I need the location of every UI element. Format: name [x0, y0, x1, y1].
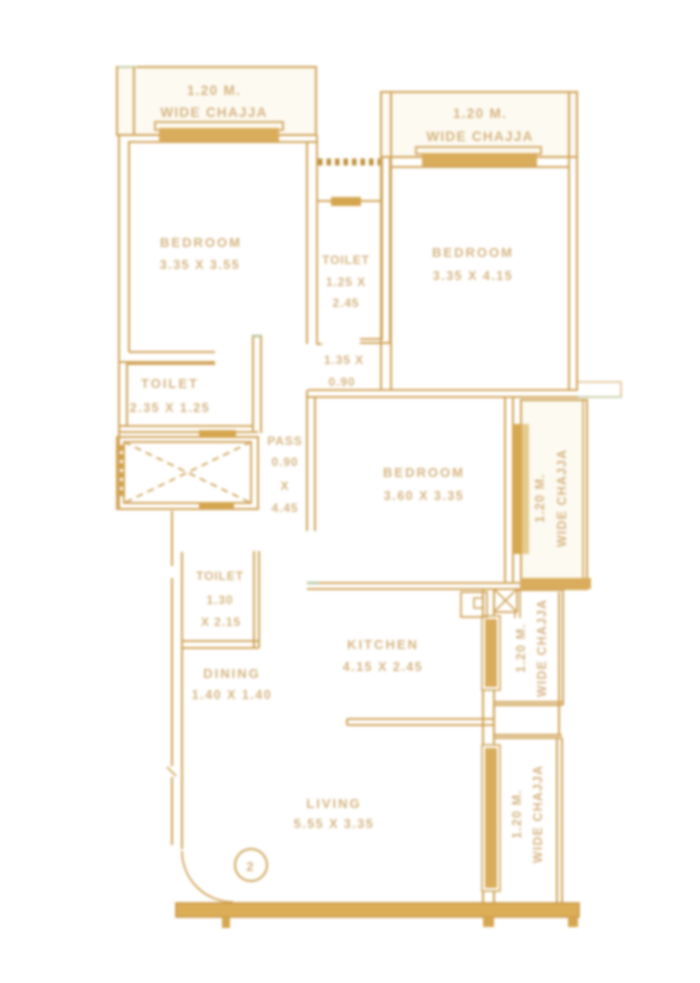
svg-text:TOILET: TOILET	[141, 376, 199, 391]
svg-text:BEDROOM: BEDROOM	[383, 465, 465, 480]
svg-text:1.20 M.: 1.20 M.	[533, 473, 547, 522]
svg-text:2: 2	[246, 859, 255, 874]
svg-text:WIDE CHAJJA: WIDE CHAJJA	[160, 105, 267, 120]
svg-text:WIDE CHAJJA: WIDE CHAJJA	[426, 129, 533, 144]
svg-text:4.45: 4.45	[272, 501, 299, 515]
svg-text:BEDROOM: BEDROOM	[432, 245, 514, 260]
svg-text:1.20 M.: 1.20 M.	[510, 789, 524, 838]
svg-text:1.40 X 1.40: 1.40 X 1.40	[192, 688, 272, 702]
svg-text:2.45: 2.45	[333, 296, 360, 310]
svg-text:3.60 X 3.35: 3.60 X 3.35	[384, 489, 464, 503]
svg-text:DINING: DINING	[203, 666, 261, 681]
svg-text:X 2.15: X 2.15	[201, 615, 241, 629]
svg-text:0.90: 0.90	[329, 375, 356, 389]
svg-text:1.20 M.: 1.20 M.	[453, 106, 507, 121]
svg-text:KITCHEN: KITCHEN	[347, 637, 419, 652]
svg-text:X: X	[281, 479, 290, 493]
svg-text:0.90: 0.90	[272, 455, 299, 469]
svg-text:BEDROOM: BEDROOM	[160, 235, 242, 250]
svg-text:2.35 X 1.25: 2.35 X 1.25	[130, 401, 210, 415]
svg-text:3.35 X 3.55: 3.35 X 3.55	[160, 258, 240, 272]
svg-text:5.55 X 3.35: 5.55 X 3.35	[294, 817, 374, 831]
svg-text:1.25 X: 1.25 X	[326, 275, 366, 289]
svg-text:4.15 X 2.45: 4.15 X 2.45	[343, 660, 423, 674]
svg-text:PASS: PASS	[267, 434, 302, 448]
svg-text:LIVING: LIVING	[306, 796, 361, 811]
svg-text:1.20 M.: 1.20 M.	[187, 83, 241, 98]
svg-text:WIDE CHAJJA: WIDE CHAJJA	[555, 449, 569, 547]
svg-text:TOILET: TOILET	[322, 253, 370, 267]
svg-text:3.35 X 4.15: 3.35 X 4.15	[433, 269, 513, 283]
svg-text:WIDE CHAJJA: WIDE CHAJJA	[531, 765, 545, 863]
svg-text:TOILET: TOILET	[196, 569, 244, 583]
svg-text:1.35 X: 1.35 X	[324, 353, 364, 367]
svg-text:1.20 M.: 1.20 M.	[514, 623, 528, 672]
svg-text:1.30: 1.30	[207, 593, 234, 607]
svg-text:WIDE CHAJJA: WIDE CHAJJA	[535, 599, 549, 697]
